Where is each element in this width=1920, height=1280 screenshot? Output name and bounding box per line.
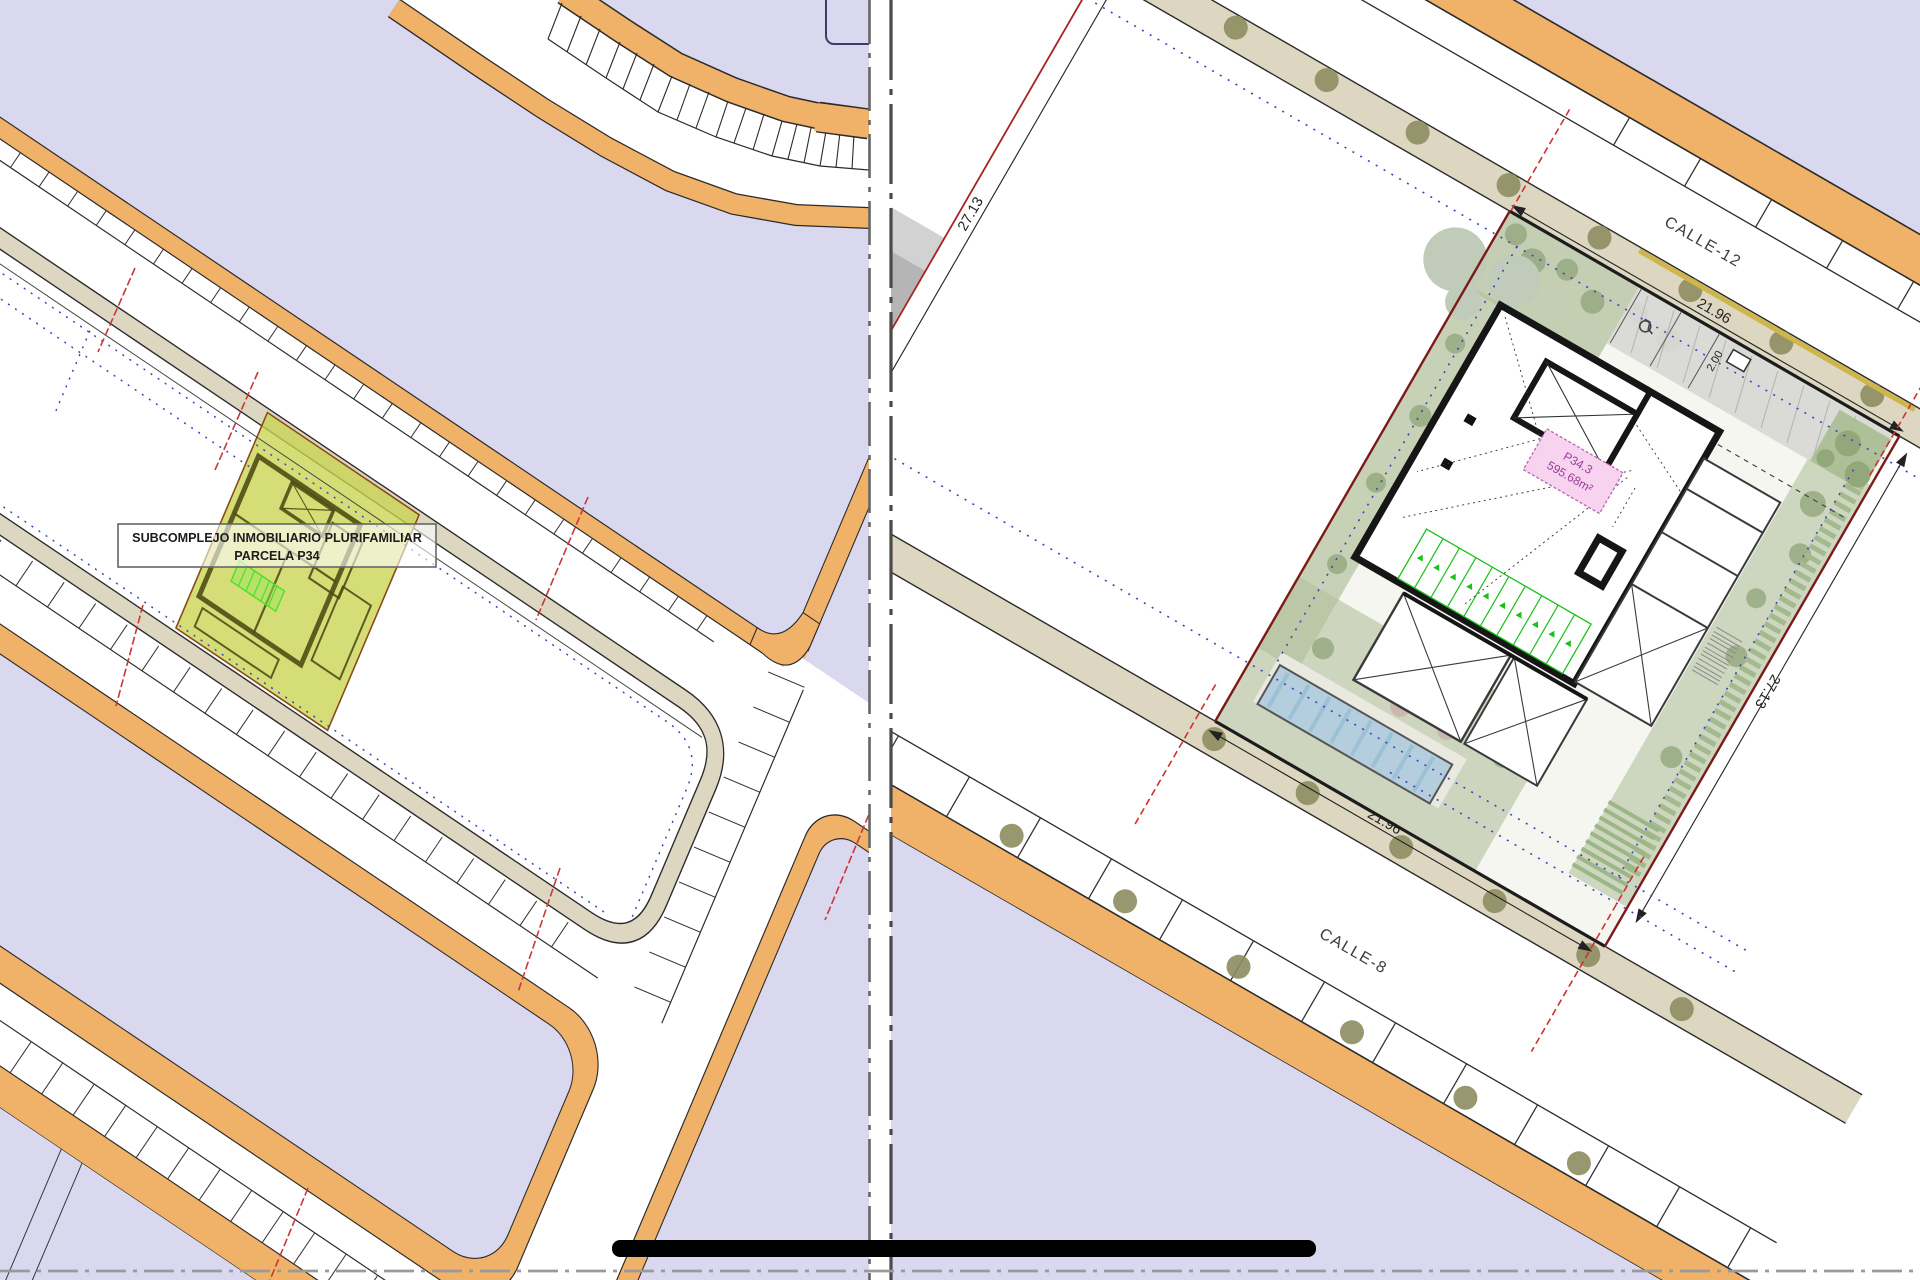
svg-text:SUBCOMPLEJO INMOBILIARIO PLURI: SUBCOMPLEJO INMOBILIARIO PLURIFAMILIAR: [132, 531, 422, 545]
svg-text:PARCELA P34: PARCELA P34: [234, 549, 319, 563]
